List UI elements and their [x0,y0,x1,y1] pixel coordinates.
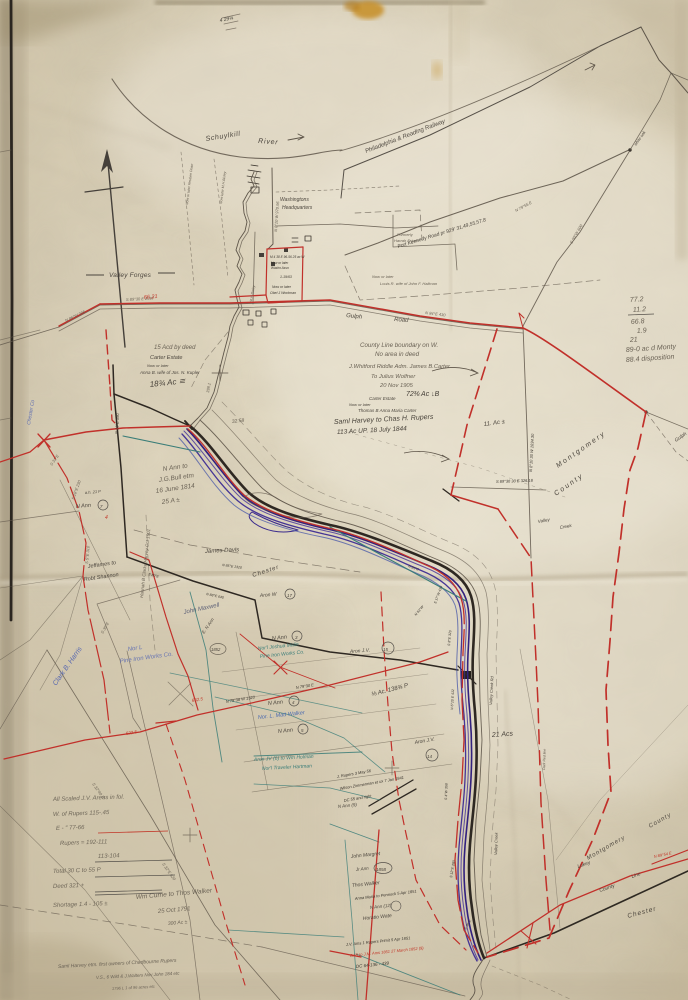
svg-text:15: 15 [383,647,389,652]
svg-text:66.21: 66.21 [144,294,158,301]
svg-text:Now or later: Now or later [349,402,371,407]
svg-text:Now or later: Now or later [147,363,169,368]
svg-text:Valley Forges: Valley Forges [109,272,152,279]
svg-text:Washn Assn: Washn Assn [271,266,289,270]
svg-text:20 Nov 1905: 20 Nov 1905 [379,383,414,389]
svg-text:E - ″ 77-66: E - ″ 77-66 [56,825,85,832]
svg-text:Formerly: Formerly [397,232,414,237]
svg-text:113-104: 113-104 [98,853,120,860]
svg-text:J.Whitford Riddle Adm. James B: J.Whitford Riddle Adm. James B.Carter [348,364,451,370]
svg-text:Road: Road [394,317,409,324]
svg-text:County Line boundary on W.: County Line boundary on W. [360,342,438,349]
svg-text:Valley Creek: Valley Creek [493,831,499,855]
svg-text:Now or later: Now or later [372,274,394,279]
svg-text:Washingtons: Washingtons [280,197,309,203]
svg-text:Dark Red line: Dark Red line [542,749,547,770]
svg-text:1858: 1858 [376,867,387,872]
svg-text:21: 21 [629,336,638,344]
svg-text:Obel J Workman: Obel J Workman [270,291,296,295]
svg-text:Headquarters: Headquarters [282,205,313,211]
svg-text:S 4°W 350: S 4°W 350 [444,783,449,800]
svg-text:4: 4 [105,515,108,521]
svg-text:14: 14 [427,754,433,759]
svg-text:No area in deed: No area in deed [375,351,420,358]
svg-text:Harrah Estate: Harrah Estate [394,238,419,243]
svg-text:Carter Estate: Carter Estate [150,355,182,361]
svg-text:1.9: 1.9 [637,327,647,335]
svg-text:Anna B. wife of Jos. N. Kupler: Anna B. wife of Jos. N. Kupler [139,370,200,375]
svg-text:Now or later: Now or later [272,285,292,289]
svg-text:77.2: 77.2 [630,296,644,304]
svg-text:River: River [258,138,279,146]
svg-text:1852: 1852 [211,647,221,652]
svg-text:15 Acd by deed: 15 Acd by deed [154,345,196,351]
svg-text:11.2: 11.2 [633,306,647,314]
svg-text:1-19/63: 1-19/63 [280,275,292,279]
svg-text:17: 17 [287,593,293,598]
svg-text:M 4 38 E 96-56 25 ac W: M 4 38 E 96-56 25 ac W [270,255,305,259]
svg-text:Louis R. wife of John F. Hall: Louis R. wife of John F. Hallman [380,281,438,286]
svg-text:Now or later: Now or later [271,261,289,265]
svg-text:72⅜ Ac ↓B: 72⅜ Ac ↓B [406,391,440,398]
svg-text:Carter Estate: Carter Estate [369,396,396,401]
svg-text:Deed 321 +: Deed 321 + [53,883,85,890]
svg-text:66.8: 66.8 [631,318,645,326]
svg-text:Thomas B Anna Maria Carter: Thomas B Anna Maria Carter [358,408,417,413]
svg-text:To Julius Wolfner: To Julius Wolfner [371,374,416,380]
